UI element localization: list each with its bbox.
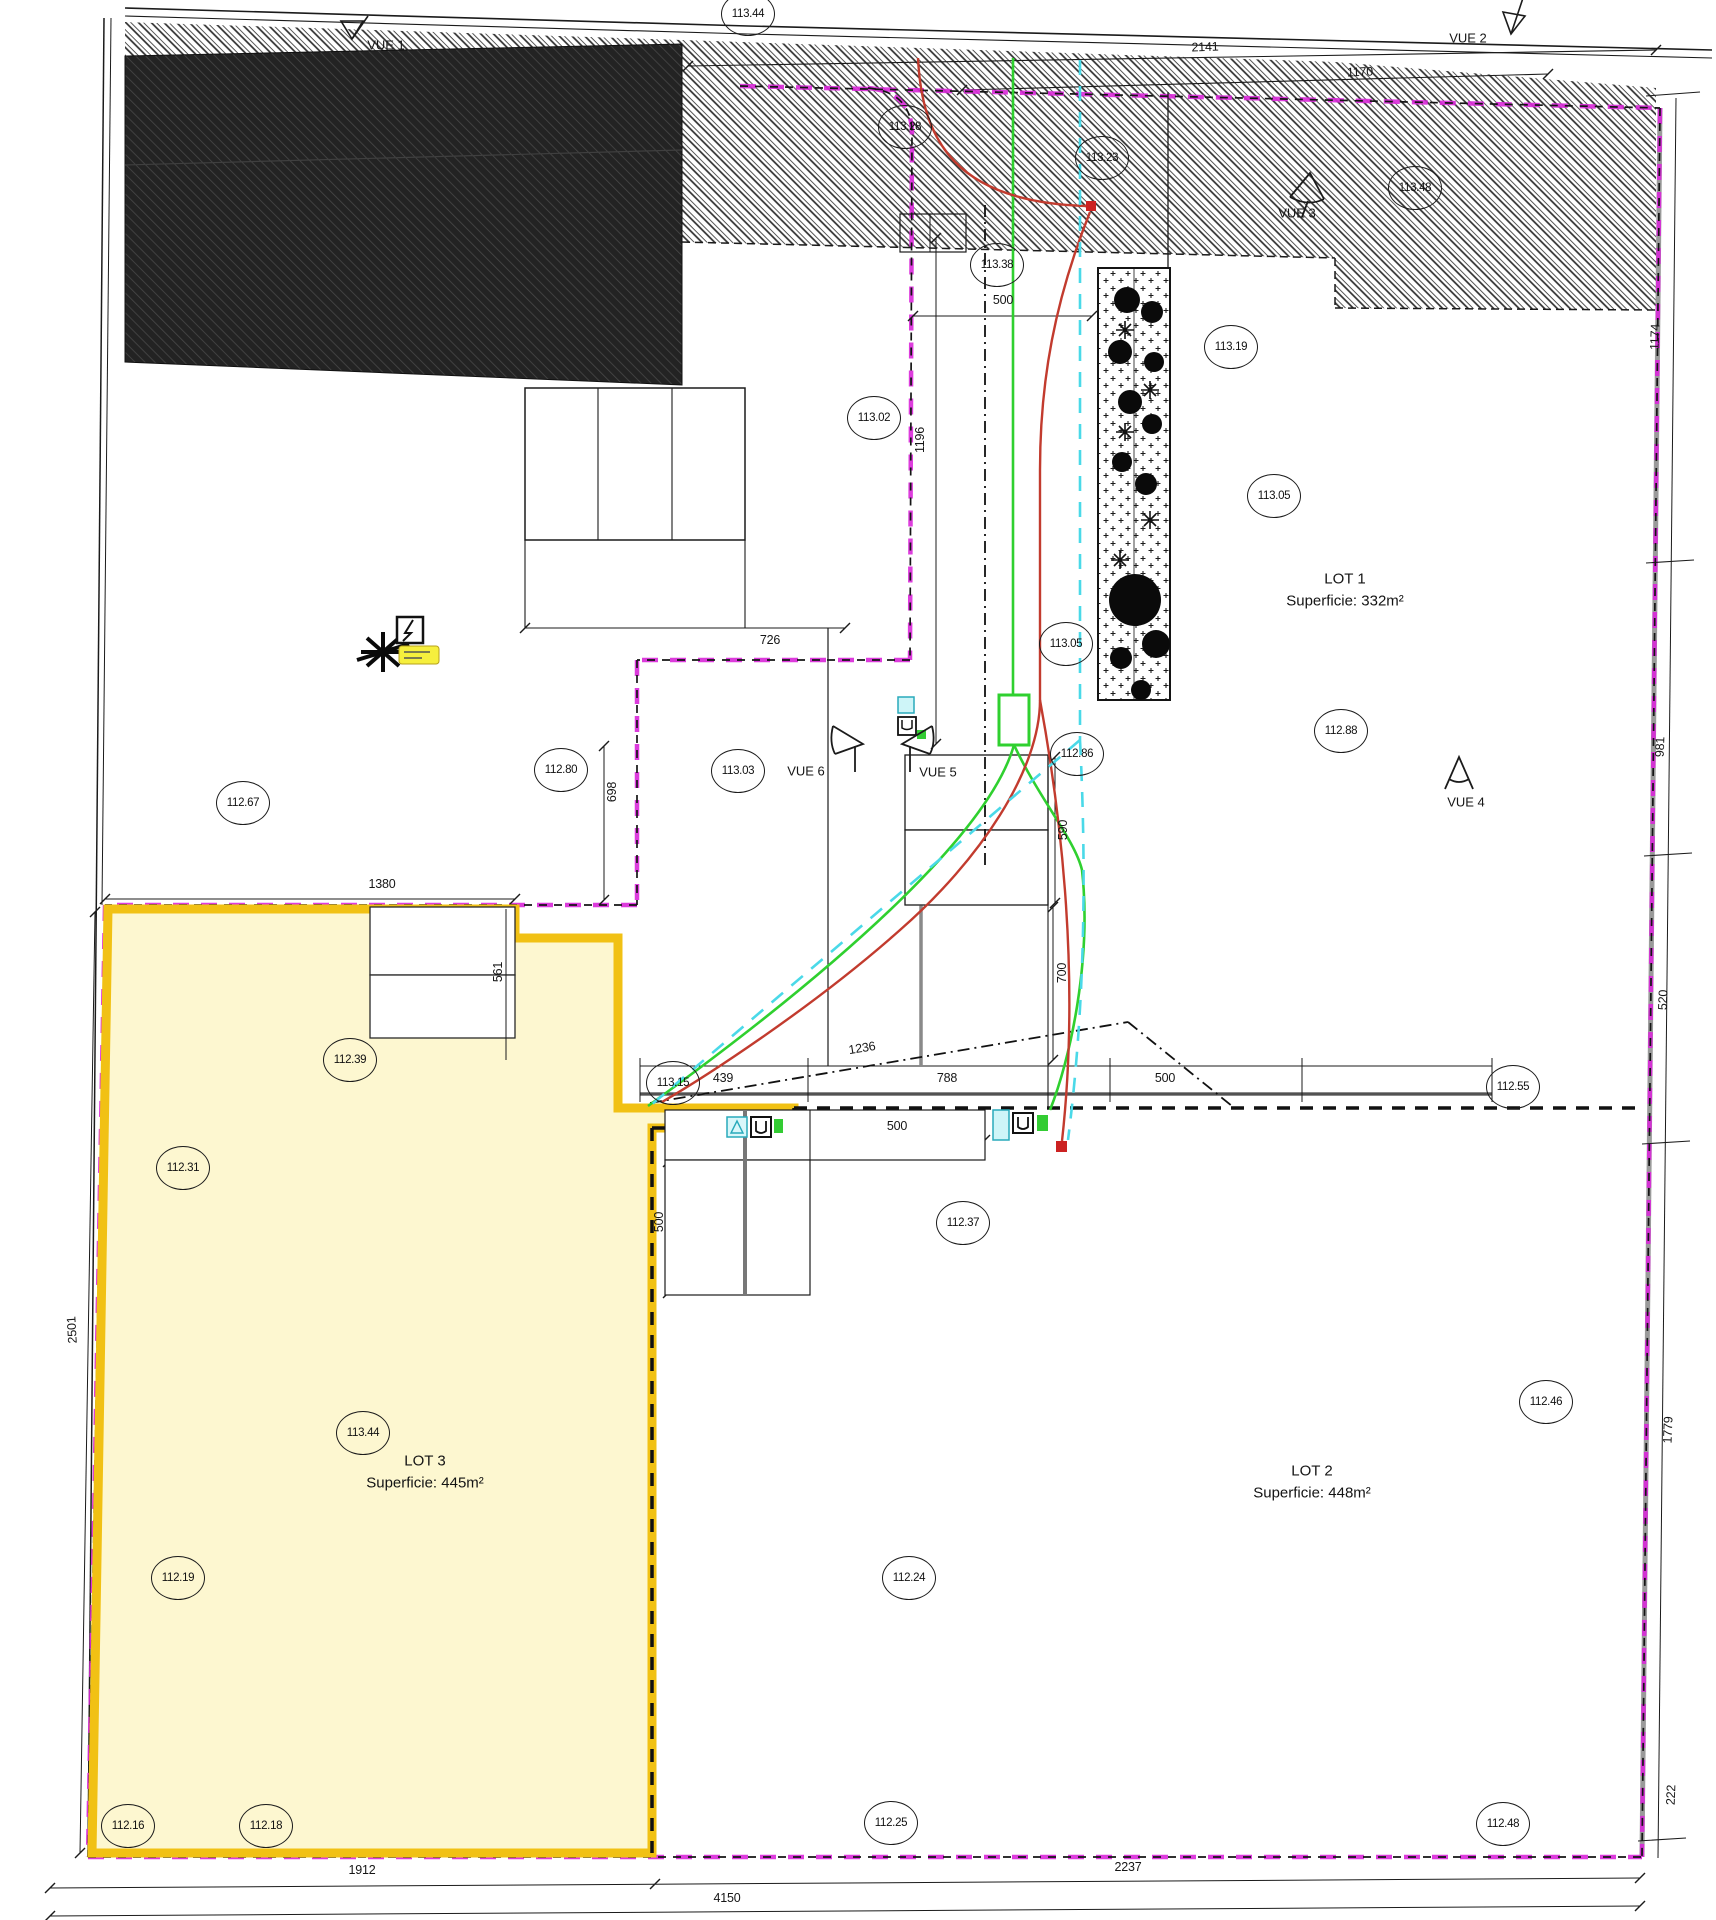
labels-layer: LOT 1 Superficie: 332m² LOT 2 Superficie… [0,0,1716,1920]
dimension-label: 981 [1653,737,1668,758]
dimension-label: 561 [491,962,505,982]
elevation-marker: 113.28 [878,105,932,149]
dimension-label: 1779 [1661,1416,1676,1443]
elevation-marker: 112.25 [864,1801,918,1845]
dimension-label: 500 [1155,1071,1175,1085]
elevation-marker: 112.88 [1314,709,1368,753]
site-plan-page: LOT 1 Superficie: 332m² LOT 2 Superficie… [0,0,1716,1920]
elevation-marker: 112.19 [151,1556,205,1600]
vue6-label: VUE 6 [787,764,825,779]
elevation-marker: 112.55 [1486,1065,1540,1109]
elevation-marker: 112.18 [239,1804,293,1848]
elevation-marker: 112.80 [534,748,588,792]
dimension-label: 1196 [913,427,927,453]
elevation-marker: 112.37 [936,1201,990,1245]
dimension-label: 788 [937,1071,957,1085]
elevation-marker: 113.15 [646,1061,700,1105]
elevation-marker: 112.48 [1476,1802,1530,1846]
dimension-label: 500 [652,1212,666,1232]
dimension-label: 1236 [848,1039,877,1057]
dimension-label: 1174 [1648,324,1663,351]
vue3-label: VUE 3 [1278,206,1316,221]
lot1-name: LOT 1 [1286,568,1404,590]
lot3-label: LOT 3 Superficie: 445m² [366,1450,484,1494]
lot2-name: LOT 2 [1253,1460,1371,1482]
dimension-label: 2501 [64,1316,79,1344]
vue4-label: VUE 4 [1447,795,1485,810]
elevation-marker: 112.46 [1519,1380,1573,1424]
elevation-marker: 112.39 [323,1038,377,1082]
dimension-label: 1912 [348,1863,375,1877]
elevation-marker: 113.44 [721,0,775,36]
elevation-marker: 113.02 [847,396,901,440]
elevation-marker: 112.86 [1050,732,1104,776]
elevation-marker: 113.05 [1247,474,1301,518]
elevation-marker: 112.16 [101,1804,155,1848]
elevation-marker: 113.23 [1075,136,1129,180]
dimension-label: 1380 [368,877,395,891]
lot3-area: Superficie: 445m² [366,1472,484,1494]
elevation-marker: 112.67 [216,781,270,825]
dimension-label: 2237 [1114,1860,1141,1874]
elevation-marker: 113.44 [336,1411,390,1455]
vue1-label: VUE 1 [367,38,405,53]
lot1-area: Superficie: 332m² [1286,590,1404,612]
elevation-marker: 113.38 [970,243,1024,287]
lot2-area: Superficie: 448m² [1253,1482,1371,1504]
dimension-label: 4150 [713,1891,740,1905]
dimension-label: 698 [605,782,619,802]
elevation-marker: 113.03 [711,749,765,793]
elevation-marker: 113.48 [1388,166,1442,210]
lot2-label: LOT 2 Superficie: 448m² [1253,1460,1371,1504]
lot3-name: LOT 3 [366,1450,484,1472]
elevation-marker: 113.05 [1039,622,1093,666]
dimension-label: 520 [1656,990,1671,1011]
dimension-label: 700 [1055,963,1069,983]
dimension-label: 222 [1664,1785,1679,1806]
dimension-label: 590 [1056,820,1070,840]
dimension-label: 1170 [1347,65,1374,80]
vue2-label: VUE 2 [1449,31,1487,46]
dimension-label: 726 [760,633,780,647]
vue5-label: VUE 5 [919,765,957,780]
lot1-label: LOT 1 Superficie: 332m² [1286,568,1404,612]
dimension-label: 500 [887,1119,907,1133]
dimension-label: 439 [713,1071,733,1085]
dimension-label: 500 [993,293,1013,307]
dimension-label: 2141 [1191,40,1218,55]
elevation-marker: 112.24 [882,1556,936,1600]
elevation-marker: 113.19 [1204,325,1258,369]
elevation-marker: 112.31 [156,1146,210,1190]
